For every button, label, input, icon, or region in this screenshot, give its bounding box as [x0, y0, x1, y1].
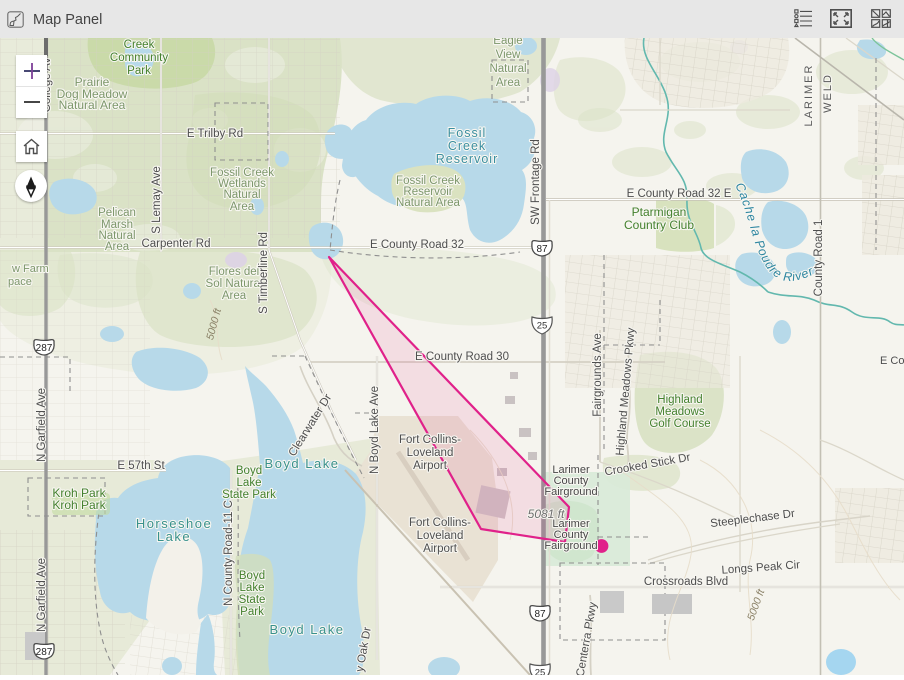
svg-text:Reservoir: Reservoir [436, 152, 499, 166]
svg-text:SW Frontage Rd: SW Frontage Rd [530, 139, 542, 225]
svg-text:Fossil: Fossil [448, 126, 487, 140]
svg-text:Area: Area [230, 201, 255, 213]
svg-text:287: 287 [36, 647, 53, 658]
svg-text:Boyd: Boyd [236, 465, 262, 477]
svg-text:Area: Area [496, 77, 521, 89]
svg-text:Natural: Natural [223, 189, 260, 201]
svg-text:WELD: WELD [822, 73, 834, 113]
svg-text:E County Road 32: E County Road 32 [370, 239, 464, 251]
svg-text:287: 287 [36, 343, 53, 354]
svg-text:State Park: State Park [222, 489, 276, 501]
svg-text:Fort Collins-: Fort Collins- [399, 434, 461, 446]
svg-text:Ptarmigan: Ptarmigan [632, 205, 687, 219]
svg-text:Fairground: Fairground [544, 540, 597, 552]
svg-text:Golf Course: Golf Course [649, 418, 710, 430]
svg-text:N County Road-11 C: N County Road-11 C [223, 500, 235, 606]
svg-text:E 57th St: E 57th St [117, 460, 165, 472]
svg-text:Lake: Lake [240, 582, 265, 594]
svg-text:N Garfield Ave: N Garfield Ave [36, 558, 48, 632]
svg-text:Area: Area [105, 241, 130, 253]
svg-text:Park: Park [240, 606, 264, 618]
svg-text:Community: Community [110, 52, 168, 64]
svg-text:Natural Area: Natural Area [396, 197, 461, 209]
svg-text:w Farm: w Farm [11, 263, 49, 275]
svg-text:Flores del: Flores del [209, 266, 260, 278]
svg-text:Creek: Creek [124, 39, 155, 51]
svg-text:Fairgrounds Ave: Fairgrounds Ave [592, 333, 604, 417]
svg-text:Boyd Lake: Boyd Lake [270, 622, 345, 637]
svg-text:LARIMER: LARIMER [803, 64, 815, 127]
svg-text:pace: pace [8, 276, 32, 288]
svg-text:Boyd: Boyd [239, 570, 265, 582]
svg-text:87: 87 [534, 609, 546, 620]
svg-text:N Boyd Lake Ave: N Boyd Lake Ave [369, 386, 381, 474]
svg-text:S Timberline Rd: S Timberline Rd [258, 232, 270, 314]
svg-text:Lake: Lake [237, 477, 262, 489]
svg-text:25: 25 [537, 321, 548, 332]
svg-text:Kroh Park: Kroh Park [52, 498, 106, 512]
svg-text:Airport: Airport [423, 543, 458, 555]
svg-text:S Lemay Ave: S Lemay Ave [151, 166, 163, 234]
svg-text:Area: Area [222, 290, 247, 302]
svg-text:Natural Area: Natural Area [59, 98, 126, 112]
svg-text:Creek: Creek [448, 139, 486, 153]
svg-text:View: View [496, 49, 521, 61]
svg-text:Carpenter Rd: Carpenter Rd [141, 238, 210, 250]
svg-text:Natural: Natural [489, 63, 526, 75]
svg-text:25: 25 [535, 668, 546, 676]
svg-text:E County Road 30: E County Road 30 [415, 351, 509, 363]
svg-text:E Trilby Rd: E Trilby Rd [187, 128, 243, 140]
svg-text:87: 87 [536, 244, 548, 255]
svg-text:Country Club: Country Club [624, 218, 694, 232]
svg-text:Loveland: Loveland [407, 447, 454, 459]
svg-text:Meadows: Meadows [655, 406, 704, 418]
svg-text:State: State [239, 594, 266, 606]
svg-text:Fort Collins-: Fort Collins- [409, 517, 471, 529]
svg-text:N Garfield Ave: N Garfield Ave [36, 388, 48, 462]
svg-text:Airport: Airport [413, 460, 448, 472]
svg-text:Highland: Highland [657, 394, 702, 406]
svg-text:Fairground: Fairground [544, 486, 597, 498]
svg-text:Loveland: Loveland [417, 530, 464, 542]
svg-text:Lake: Lake [157, 529, 191, 544]
svg-text:Sol Natural: Sol Natural [206, 278, 263, 290]
svg-text:Park: Park [127, 65, 151, 77]
svg-text:Crossroads Blvd: Crossroads Blvd [644, 576, 728, 588]
svg-text:5081 ft: 5081 ft [528, 507, 565, 521]
svg-text:E Coun: E Coun [880, 355, 904, 367]
svg-text:Boyd Lake: Boyd Lake [265, 456, 340, 471]
svg-text:Pelican: Pelican [98, 207, 136, 219]
svg-text:E County Road 32 E: E County Road 32 E [627, 188, 732, 200]
svg-text:County Road 1: County Road 1 [813, 220, 825, 297]
